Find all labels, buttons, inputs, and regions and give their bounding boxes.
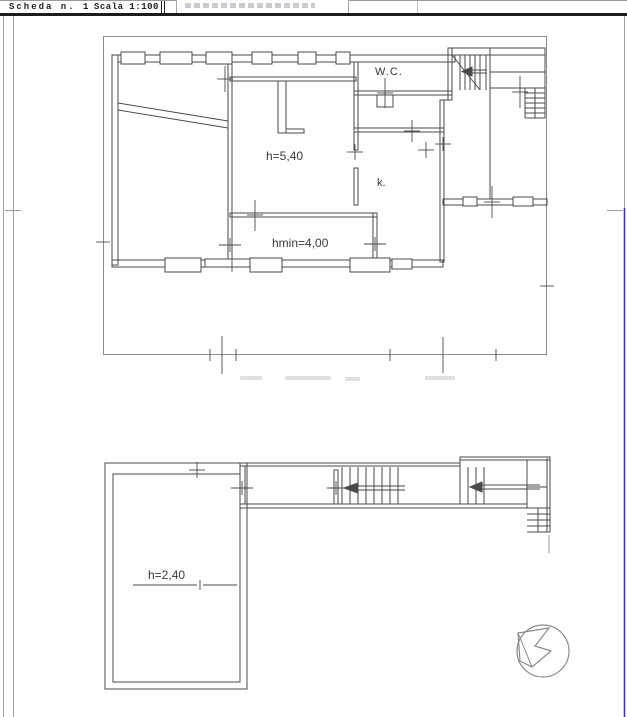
room-label-height-540: h=5,40 <box>266 149 303 163</box>
room-label-min-height: hmin=4,00 <box>272 236 328 250</box>
erased-text-remnant <box>425 376 455 380</box>
room-label-kitchen: k. <box>377 177 386 189</box>
north-arrow-icon <box>517 625 569 677</box>
floor-plan-drawing <box>0 0 627 717</box>
erased-text-remnant <box>345 377 360 381</box>
upper-plan-dimension-ticks <box>96 66 554 374</box>
room-label-wc: W.C. <box>375 66 403 78</box>
drawing-sheet: Scheda n. 1 Scala 1:100 <box>0 0 627 717</box>
lower-plan-stairs <box>342 467 550 553</box>
upper-plan-stairs <box>452 48 545 199</box>
erased-text-remnant <box>240 376 262 380</box>
erased-text-remnant <box>285 376 331 380</box>
upper-plan-walls <box>112 48 547 267</box>
room-label-height-240: h=2,40 <box>148 568 185 582</box>
sheet-frame <box>4 16 625 717</box>
